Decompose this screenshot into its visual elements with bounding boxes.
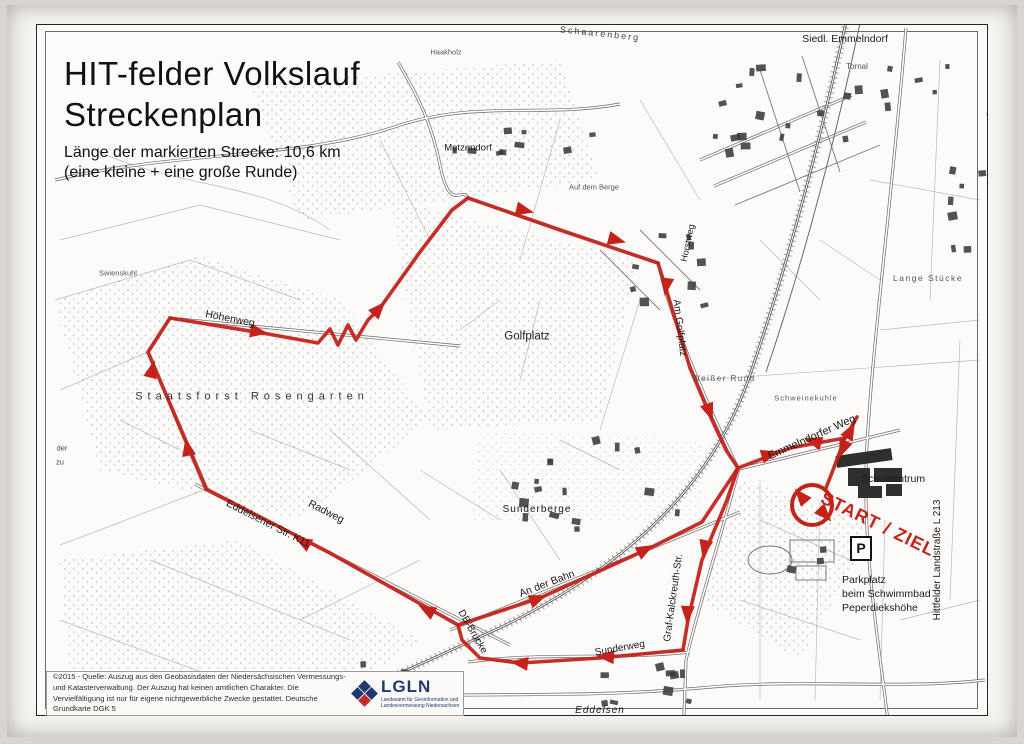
- scanned-route-map-page: Siedl. EmmelndorfTornalSchaarenbergMetze…: [0, 0, 1024, 744]
- title-block: HIT-felder Volkslauf Streckenplan Länge …: [64, 54, 360, 184]
- copyright-text: ©2015 - Quelle: Auszug aus den Geobasisd…: [47, 669, 350, 718]
- lgln-diamonds-icon: [352, 681, 378, 707]
- lgln-subtext: Landesamt für Geoinformation und Landesv…: [381, 697, 463, 710]
- footer-attribution: ©2015 - Quelle: Auszug aus den Geobasisd…: [46, 671, 464, 716]
- page-title-line2: Streckenplan: [64, 95, 360, 136]
- route-rounds-text: (eine kleine + eine große Runde): [64, 163, 360, 183]
- lgln-logo: LGLN Landesamt für Geoinformation und La…: [350, 678, 463, 710]
- page-title-line1: HIT-felder Volkslauf: [64, 54, 360, 95]
- route-length-text: Länge der markierten Strecke: 10,6 km: [64, 143, 360, 163]
- parking-symbol: P: [850, 536, 872, 561]
- lgln-wordmark: LGLN: [381, 678, 463, 695]
